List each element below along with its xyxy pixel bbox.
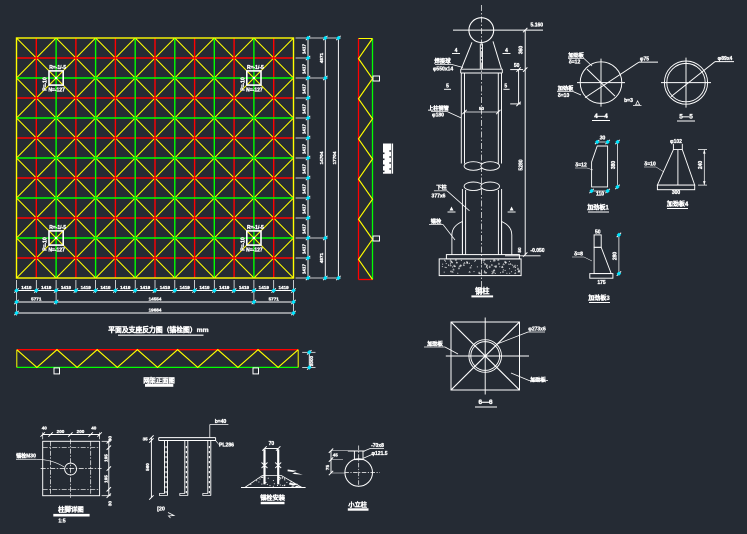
svg-text:1417: 1417: [302, 203, 307, 214]
svg-text:1417: 1417: [302, 263, 307, 274]
svg-text:PL286: PL286: [219, 443, 234, 449]
svg-text:35: 35: [143, 437, 149, 442]
svg-text:280: 280: [612, 252, 618, 261]
svg-text:加劲板: 加劲板: [426, 340, 443, 348]
svg-text:加劲板1: 加劲板1: [586, 204, 609, 212]
svg-text:R=-1/-5: R=-1/-5: [247, 225, 264, 231]
svg-text:1:5: 1:5: [58, 519, 65, 525]
svg-text:6—6: 6—6: [478, 399, 493, 406]
svg-text:380: 380: [611, 161, 617, 170]
svg-text:锚栓: 锚栓: [431, 217, 442, 225]
svg-text:1417: 1417: [302, 103, 307, 114]
svg-text:δ=10: δ=10: [644, 162, 656, 168]
svg-text:1417: 1417: [302, 43, 307, 54]
svg-text:δ=12: δ=12: [569, 60, 581, 66]
svg-text:N=-127: N=-127: [48, 87, 65, 93]
svg-text:30: 30: [107, 436, 112, 442]
svg-text:钢柱: 钢柱: [474, 287, 490, 296]
svg-text:1417: 1417: [302, 183, 307, 194]
svg-text:N=-127: N=-127: [48, 247, 65, 253]
svg-text:-0.050: -0.050: [530, 248, 544, 254]
svg-text:195: 195: [103, 454, 108, 462]
svg-text:1417: 1417: [302, 223, 307, 234]
svg-text:R=-1/-5: R=-1/-5: [49, 65, 66, 71]
svg-text:N=-127: N=-127: [246, 247, 263, 253]
svg-text:560: 560: [145, 463, 150, 471]
svg-text:4—4: 4—4: [594, 113, 608, 120]
svg-text:45: 45: [333, 453, 339, 458]
svg-text:1417: 1417: [302, 163, 307, 174]
svg-text:30: 30: [107, 501, 112, 507]
svg-text:377x6: 377x6: [432, 193, 446, 199]
svg-text:75: 75: [325, 465, 330, 471]
svg-text:5—5: 5—5: [679, 114, 693, 121]
svg-text:1417: 1417: [302, 243, 307, 254]
svg-text:50: 50: [595, 229, 601, 235]
svg-text:5771: 5771: [269, 297, 280, 302]
svg-text:1419: 1419: [100, 285, 111, 290]
svg-text:锚栓M30: 锚栓M30: [16, 453, 36, 460]
svg-text:2000: 2000: [309, 355, 314, 366]
svg-text:φ550x14: φ550x14: [433, 67, 453, 73]
svg-text:1419: 1419: [21, 285, 32, 290]
svg-text:1419: 1419: [199, 285, 210, 290]
svg-text:50: 50: [514, 63, 520, 69]
svg-text:70: 70: [269, 441, 275, 447]
svg-text:195: 195: [103, 475, 108, 483]
svg-text:φ102: φ102: [670, 139, 682, 145]
svg-text:5: 5: [446, 84, 449, 90]
svg-text:[20: [20: [157, 507, 165, 513]
svg-text:b=3: b=3: [624, 98, 633, 104]
svg-text:平面及支座反力图（锚栓图）mm: 平面及支座反力图（锚栓图）mm: [108, 325, 208, 334]
svg-text:1417: 1417: [302, 83, 307, 94]
svg-text:φ121.5: φ121.5: [371, 451, 387, 457]
svg-text:5280: 5280: [519, 159, 525, 170]
svg-text:4871: 4871: [319, 252, 324, 263]
svg-text:柱脚详图: 柱脚详图: [58, 505, 84, 514]
svg-text:加劲板4: 加劲板4: [666, 200, 689, 208]
svg-text:1417: 1417: [302, 63, 307, 74]
svg-text:下柱: 下柱: [436, 183, 447, 191]
svg-text:1419: 1419: [120, 285, 131, 290]
svg-text:1419: 1419: [239, 285, 250, 290]
svg-text:1419: 1419: [160, 285, 171, 290]
svg-text:175: 175: [597, 280, 606, 286]
svg-text:360: 360: [519, 46, 525, 55]
svg-text:锚栓安装: 锚栓安装: [260, 494, 286, 502]
svg-text:上柱钢管: 上柱钢管: [428, 104, 449, 112]
svg-text:5: 5: [504, 84, 507, 90]
svg-text:50: 50: [479, 106, 485, 111]
svg-text:14554: 14554: [149, 297, 162, 302]
svg-text:240: 240: [698, 161, 704, 170]
svg-text:5771: 5771: [31, 297, 42, 302]
svg-text:1419: 1419: [81, 285, 92, 290]
svg-text:200: 200: [77, 429, 85, 434]
svg-text:1419: 1419: [180, 285, 191, 290]
svg-text:17704: 17704: [332, 151, 337, 164]
svg-text:网架正面图: 网架正面图: [143, 376, 174, 385]
svg-text:焊接球: 焊接球: [434, 57, 451, 65]
svg-text:30: 30: [600, 136, 606, 142]
svg-text:加劲板3: 加劲板3: [587, 294, 610, 302]
svg-text:R=-1/-5: R=-1/-5: [49, 225, 66, 231]
svg-text:1419: 1419: [259, 285, 270, 290]
svg-text:1417: 1417: [302, 143, 307, 154]
svg-text:19684: 19684: [149, 308, 162, 313]
svg-text:1419: 1419: [61, 285, 72, 290]
svg-text:δ=10: δ=10: [558, 93, 570, 99]
svg-text:5.160: 5.160: [531, 23, 544, 29]
svg-text:加劲板: 加劲板: [557, 84, 574, 92]
svg-text:1419: 1419: [278, 285, 289, 290]
svg-text:δ=8: δ=8: [574, 252, 583, 258]
svg-text:1419: 1419: [140, 285, 151, 290]
svg-text:小立柱: 小立柱: [347, 501, 367, 509]
svg-text:δ=12: δ=12: [575, 163, 587, 169]
svg-text:4871: 4871: [319, 52, 324, 63]
svg-text:300: 300: [672, 190, 681, 196]
svg-text:50: 50: [517, 247, 522, 253]
svg-text:R=-1/-5: R=-1/-5: [247, 65, 264, 71]
svg-text:40: 40: [91, 426, 97, 431]
svg-text:14704: 14704: [319, 151, 324, 164]
svg-text:N=-127: N=-127: [246, 87, 263, 93]
svg-text:加劲板: 加劲板: [567, 51, 584, 59]
svg-text:φ273x6: φ273x6: [528, 327, 546, 333]
svg-text:1417: 1417: [302, 123, 307, 134]
svg-text:φ75: φ75: [640, 57, 649, 63]
svg-text:φ89x4: φ89x4: [718, 56, 733, 62]
svg-text:加劲板: 加劲板: [529, 376, 546, 384]
svg-text:200: 200: [57, 429, 65, 434]
svg-text:1419: 1419: [41, 285, 52, 290]
svg-text:40: 40: [42, 426, 48, 431]
svg-text:1419: 1419: [219, 285, 230, 290]
svg-text:110: 110: [596, 192, 604, 198]
svg-text:φ180: φ180: [432, 113, 444, 119]
